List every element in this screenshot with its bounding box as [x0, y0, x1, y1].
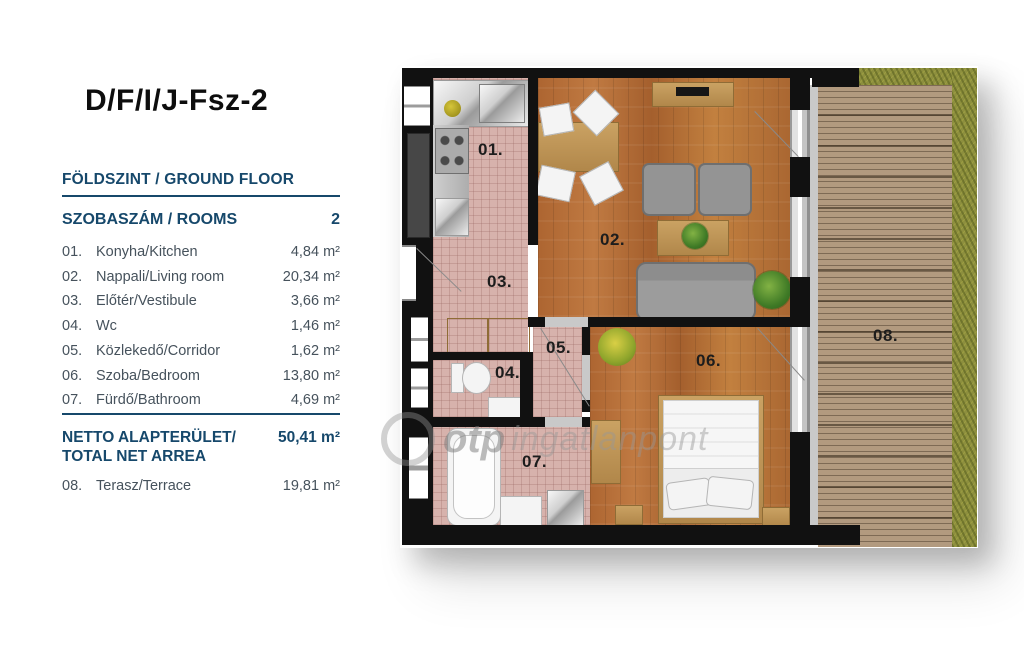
- room-list: 01.Konyha/Kitchen4,84 m² 02.Nappali/Livi…: [62, 240, 340, 413]
- nightstand: [615, 505, 643, 525]
- watermark-suffix: ingatlanpont: [511, 420, 708, 459]
- floor-label: FÖLDSZINT / GROUND FLOOR: [62, 171, 294, 189]
- window: [404, 86, 430, 126]
- wall-top-terrace: [812, 68, 859, 87]
- bedroom-door-threshold: [582, 355, 590, 400]
- divider: [62, 413, 340, 415]
- wall-right-seg: [790, 277, 810, 327]
- room-label-08: 08.: [873, 326, 898, 346]
- room-name: Nappali/Living room: [96, 265, 283, 290]
- total-value: 50,41 m²: [278, 428, 340, 466]
- room-name: Fürdő/Bathroom: [96, 388, 291, 413]
- armchair: [642, 163, 696, 216]
- room-label-04: 04.: [495, 363, 520, 383]
- page-title: D/F/I/J-Fsz-2: [85, 84, 268, 118]
- total-net-area: NETTO ALAPTERÜLET/ TOTAL NET ARREA 50,41…: [62, 428, 340, 466]
- room-name: Közlekedő/Corridor: [96, 339, 291, 364]
- room-area: 3,66 m²: [291, 289, 340, 314]
- window: [411, 368, 428, 408]
- plant-living: [753, 271, 791, 309]
- room-area: 19,81 m²: [283, 474, 340, 499]
- plant-bedroom: [598, 328, 636, 366]
- corridor-door-threshold: [545, 317, 588, 327]
- total-label: NETTO ALAPTERÜLET/ TOTAL NET ARREA: [62, 428, 236, 466]
- room-number: 07.: [62, 388, 96, 413]
- rooms-count-value: 2: [331, 211, 340, 229]
- washing-machine: [547, 490, 584, 526]
- wall-kitchen-living: [528, 78, 538, 245]
- dining-chair: [539, 103, 575, 137]
- bathroom-sink: [500, 496, 542, 526]
- list-item: 01.Konyha/Kitchen4,84 m²: [62, 240, 340, 265]
- room-area: 1,46 m²: [291, 314, 340, 339]
- watermark: otp ingatlanpont: [381, 412, 708, 466]
- shaft: [407, 133, 430, 238]
- divider: [62, 195, 340, 197]
- list-item: 04.Wc1,46 m²: [62, 314, 340, 339]
- terrace-threshold: [810, 85, 818, 525]
- terrace-deck: [818, 85, 952, 547]
- sofa: [636, 262, 756, 321]
- room-label-01: 01.: [478, 140, 503, 160]
- room-area: 4,69 m²: [291, 388, 340, 413]
- total-label-line2: TOTAL NET ARREA: [62, 448, 206, 465]
- room-name: Wc: [96, 314, 291, 339]
- glass-door-bedroom: [790, 327, 810, 432]
- room-area: 4,84 m²: [291, 240, 340, 265]
- kitchen-appliance: [435, 198, 469, 236]
- list-item: 07.Fürdő/Bathroom4,69 m²: [62, 388, 340, 413]
- wall-right-seg: [790, 432, 810, 525]
- armchair: [698, 163, 752, 216]
- room-area: 1,62 m²: [291, 339, 340, 364]
- room-label-03: 03.: [487, 272, 512, 292]
- room-area: 20,34 m²: [283, 265, 340, 290]
- kitchen-sink: [479, 84, 525, 123]
- otp-logo-icon: [381, 412, 435, 466]
- list-item: 02.Nappali/Living room20,34 m²: [62, 265, 340, 290]
- wall-living-bedroom: [588, 317, 790, 327]
- rooms-count-header: SZOBASZÁM / ROOMS 2: [62, 211, 340, 229]
- wall-bottom: [402, 525, 860, 545]
- nightstand: [762, 507, 790, 527]
- room-number: 05.: [62, 339, 96, 364]
- plant-on-table: [682, 223, 708, 249]
- kitchen-round-fixture: [444, 100, 461, 117]
- floorplan-flyer: { "panel": { "title": "D/F/I/J-Fsz-2", "…: [0, 0, 1024, 657]
- wall-right-seg: [790, 78, 810, 110]
- room-number: 06.: [62, 364, 96, 389]
- pillow: [706, 476, 755, 511]
- room-area: 13,80 m²: [283, 364, 340, 389]
- room-name: Terasz/Terrace: [96, 474, 283, 499]
- rooms-header-label: SZOBASZÁM / ROOMS: [62, 211, 237, 229]
- wall-lower-left: [528, 317, 545, 327]
- window: [411, 317, 428, 362]
- list-item: 08.Terasz/Terrace19,81 m²: [62, 474, 340, 499]
- room-number: 04.: [62, 314, 96, 339]
- room-number: 03.: [62, 289, 96, 314]
- room-number: 02.: [62, 265, 96, 290]
- watermark-brand: otp: [443, 417, 505, 462]
- wall-right-seg: [790, 157, 810, 197]
- room-label-05: 05.: [546, 338, 571, 358]
- room-number: 08.: [62, 474, 96, 499]
- wall-vestibule-wc: [433, 352, 533, 360]
- floor-plan: 01. 02. 03. 04. 05. 06. 07. 08. otp inga…: [395, 60, 1015, 590]
- wall-top: [402, 68, 812, 78]
- list-item: 05.Közlekedő/Corridor1,62 m²: [62, 339, 340, 364]
- room-name: Konyha/Kitchen: [96, 240, 291, 265]
- room-label-02: 02.: [600, 230, 625, 250]
- stove: [435, 128, 469, 174]
- entry-door-opening: [402, 245, 416, 301]
- glass-door-living: [790, 197, 810, 277]
- room-number: 01.: [62, 240, 96, 265]
- room-name: Szoba/Bedroom: [96, 364, 283, 389]
- total-label-line1: NETTO ALAPTERÜLET/: [62, 429, 236, 446]
- room-name: Előtér/Vestibule: [96, 289, 291, 314]
- tv: [676, 87, 709, 96]
- list-item: 06.Szoba/Bedroom13,80 m²: [62, 364, 340, 389]
- toilet-bowl: [462, 362, 491, 394]
- list-item: 03.Előtér/Vestibule3,66 m²: [62, 289, 340, 314]
- room-label-06: 06.: [696, 351, 721, 371]
- grass-strip-right: [952, 68, 977, 547]
- terrace-row: 08.Terasz/Terrace19,81 m²: [62, 474, 340, 499]
